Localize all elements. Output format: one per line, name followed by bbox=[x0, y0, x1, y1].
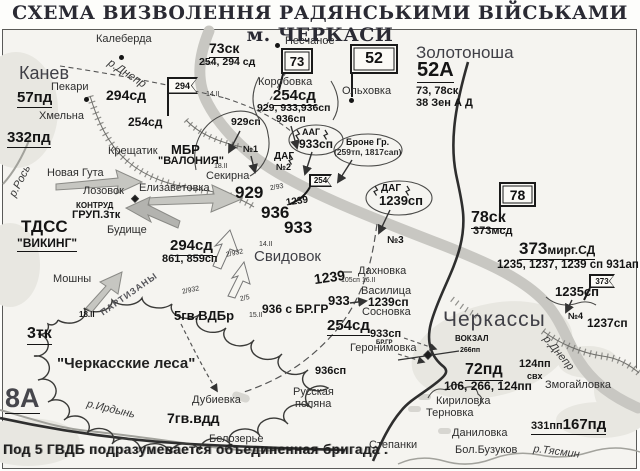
unit-373-number: 373 bbox=[519, 239, 547, 258]
map-footnote: Под 5 ГВДБ подразумевается объединенная … bbox=[3, 442, 388, 457]
unit-373mirg-sd: 373мирг.СД bbox=[519, 240, 595, 260]
unit-332pd: 332пд bbox=[7, 130, 51, 148]
unit-1239sp-north: 1239сп bbox=[379, 194, 423, 208]
unit-72pd-sub: 106, 266, 124пп bbox=[444, 380, 532, 393]
label-khmelna: Хмельна bbox=[39, 111, 84, 123]
unit-72pd: 72пд bbox=[465, 362, 503, 381]
unit-373-suffix: мирг.СД bbox=[547, 243, 595, 257]
unit-373-sub: 1235, 1237, 1239 сп 931ап bbox=[497, 259, 639, 271]
unit-8a: 8А bbox=[5, 384, 40, 414]
label-kontrud-2: ГРУП.3тк bbox=[72, 210, 120, 222]
unit-3tk: 3тк bbox=[27, 326, 52, 345]
unit-294sd-sub: 861, 859сп bbox=[162, 254, 218, 266]
flag-294-number: 294 bbox=[175, 81, 190, 91]
unit-936-br-gr: 936 с БР.ГР bbox=[262, 303, 328, 316]
flag-78: 78 bbox=[499, 182, 536, 207]
label-cherkassy: Черкассы bbox=[443, 309, 546, 331]
label-moshny: Мошны bbox=[53, 274, 91, 286]
label-ternovka: Терновка bbox=[426, 408, 474, 420]
label-sekirna: Секирна bbox=[206, 171, 249, 183]
date-15-II: 15.II bbox=[249, 312, 263, 319]
label-elizavetovka: Елизаветовка bbox=[139, 183, 210, 195]
mark-n3: №3 bbox=[387, 236, 404, 247]
date-14-II-a: 14.II bbox=[202, 60, 216, 67]
flag-78-number: 78 bbox=[510, 187, 526, 203]
unit-124pp: 124пп bbox=[519, 359, 551, 371]
label-kirilovka: Кириловка bbox=[436, 396, 491, 408]
flag-373-number: 373 bbox=[595, 277, 608, 286]
unit-933-small: 933 bbox=[328, 294, 350, 308]
unit-dag-n2: ДАГ bbox=[274, 152, 294, 163]
unit-52a-sub1: 73, 78ск bbox=[416, 86, 458, 98]
flag-73-number: 73 bbox=[290, 54, 304, 69]
flag-254-number: 254 bbox=[314, 176, 327, 185]
unit-929sp: 929сп bbox=[231, 117, 261, 128]
label-vokzal: ВОКЗАЛ bbox=[455, 335, 488, 343]
label-russkaya-polyana-2: поляна bbox=[295, 399, 331, 411]
village-dot bbox=[119, 55, 124, 60]
mark-n2: №2 bbox=[276, 163, 291, 172]
mark-svx: свх bbox=[527, 372, 543, 381]
unit-52a: 52А bbox=[417, 60, 454, 83]
map-screenshot: СХЕМА ВИЗВОЛЕННЯ РАДЯНСЬКИМИ ВІЙСЬКАМИ м… bbox=[0, 0, 640, 471]
unit-167pd: 167пд bbox=[563, 416, 607, 433]
unit-331pp-167pd: 331пп167пд bbox=[531, 417, 606, 435]
label-budishche: Будище bbox=[107, 225, 147, 237]
unit-7gv-vdd: 7гв.вдд bbox=[167, 411, 220, 426]
label-bol-buzukov: Бол.Бузуков bbox=[455, 445, 517, 457]
unit-52a-sub2: 38 Зен А Д bbox=[416, 98, 473, 110]
label-geronimovka: Геронимовка bbox=[350, 343, 417, 355]
unit-929-big: 929 bbox=[235, 184, 263, 202]
date-14-II-c: 14.II bbox=[259, 241, 273, 248]
unit-57pd: 57пд bbox=[17, 90, 52, 108]
label-novaya-guta: Новая Гута bbox=[47, 168, 104, 180]
label-kreshchatik: Крещатик bbox=[108, 146, 158, 158]
unit-tdss: ТДСС bbox=[21, 218, 68, 236]
mark-n4: №4 bbox=[568, 312, 583, 321]
label-lozovok: Лозовок bbox=[83, 186, 124, 198]
unit-5gv-vdbr: 5гв.ВДБр bbox=[174, 309, 234, 323]
date-18-II-b: 18.II bbox=[79, 311, 95, 319]
label-olkhovka: Ольховка bbox=[342, 86, 391, 98]
unit-266pp: 266пп bbox=[460, 347, 480, 354]
map-title: СХЕМА ВИЗВОЛЕННЯ РАДЯНСЬКИМИ ВІЙСЬКАМИ м… bbox=[0, 2, 640, 46]
unit-933sp-top: 933сп bbox=[299, 138, 333, 151]
label-danilovka: Даниловка bbox=[452, 428, 507, 440]
village-dot bbox=[349, 98, 354, 103]
label-dakhnovka: Дахновка bbox=[358, 266, 406, 278]
mark-105sp-16-II: 105сп 16.II bbox=[341, 277, 376, 284]
unit-936sp-south: 936сп bbox=[315, 366, 346, 378]
unit-254sd-south: 254сд bbox=[327, 318, 370, 336]
unit-933sp-south: 933сп bbox=[370, 329, 401, 341]
unit-78sk-sub: 373мсд bbox=[473, 226, 512, 238]
unit-brone-gr-sub: (259тп, 1817сап) bbox=[334, 148, 401, 157]
label-pekari: Пекари bbox=[51, 82, 88, 94]
label-svidovok: Свидовок bbox=[254, 249, 321, 265]
mark-n1: №1 bbox=[243, 145, 258, 154]
flag-52: 52 bbox=[350, 44, 398, 74]
label-dubievka: Дубиевка bbox=[192, 395, 241, 407]
village-dot bbox=[84, 97, 89, 102]
unit-294sd-west: 294сд bbox=[106, 88, 146, 103]
unit-254sd-west: 254сд bbox=[128, 116, 162, 129]
label-russkaya-polyana-1: Русская bbox=[293, 387, 334, 399]
label-cherkassy-forest: "Черкасские леса" bbox=[57, 356, 195, 372]
unit-1237sp: 1237сп bbox=[587, 317, 628, 330]
date-14-II-b: 14.II bbox=[206, 91, 220, 98]
flag-73: 73 bbox=[281, 48, 313, 74]
flag-52-number: 52 bbox=[365, 50, 383, 68]
unit-933-big: 933 bbox=[284, 219, 312, 237]
unit-331pp: 331пп bbox=[531, 420, 563, 432]
unit-936sp-top: 936сп bbox=[276, 114, 306, 125]
unit-viking: "ВИКИНГ" bbox=[17, 237, 77, 252]
label-zmogailovka: Змогайловка bbox=[545, 380, 611, 392]
